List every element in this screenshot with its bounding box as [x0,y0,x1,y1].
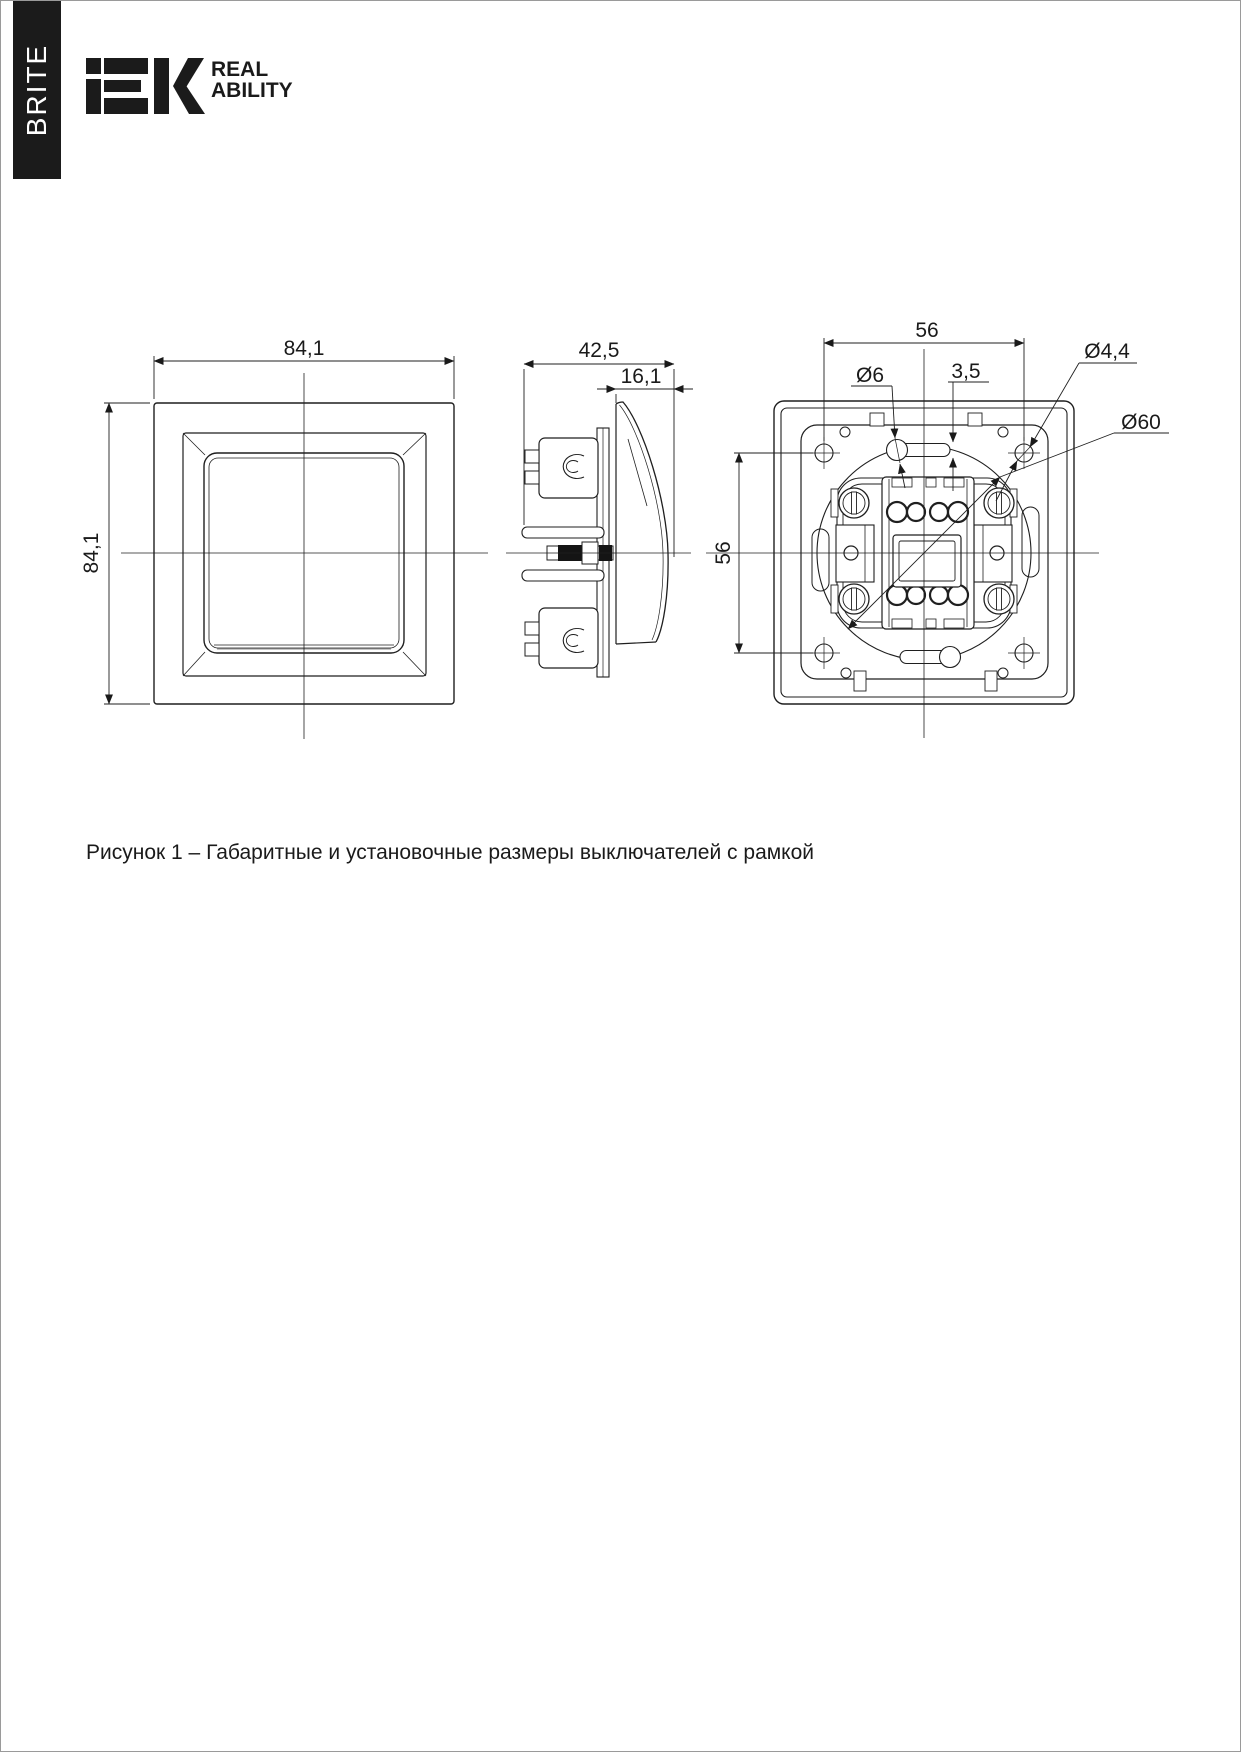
dim-slot-width-label: 3,5 [951,360,980,383]
dim-hole-spacing-h-label: 56 [915,319,938,342]
dimension-drawing: 84,1 84,1 [1,1,1241,821]
dim-keyhole-diameter-label: Ø6 [856,364,884,387]
dim-hole-spacing-v-label: 56 [712,541,735,564]
dim-front-protrusion-label: 16,1 [621,365,662,388]
dim-side-depth-label: 42,5 [579,339,620,362]
side-view [506,402,691,677]
front-view [121,373,488,739]
dim-front-height-label: 84,1 [80,533,103,574]
dim-front-protrusion: 16,1 [597,365,693,403]
side-terminal-bottom [525,608,598,668]
rear-terminal-right [974,525,1012,582]
dim-mount-circle-diameter-label: Ø60 [1121,411,1161,434]
rear-terminal-left [836,525,874,582]
figure-caption: Рисунок 1 – Габаритные и установочные ра… [86,841,814,865]
dim-front-width-label: 84,1 [284,337,325,360]
document-page: BRITE REAL ABILITY [0,0,1241,1752]
rear-view [706,349,1099,738]
dim-front-height: 84,1 [80,403,150,704]
side-terminal-top [525,438,598,498]
dim-screw-hole-diameter-label: Ø4,4 [1084,340,1130,363]
side-rocker [616,402,668,644]
